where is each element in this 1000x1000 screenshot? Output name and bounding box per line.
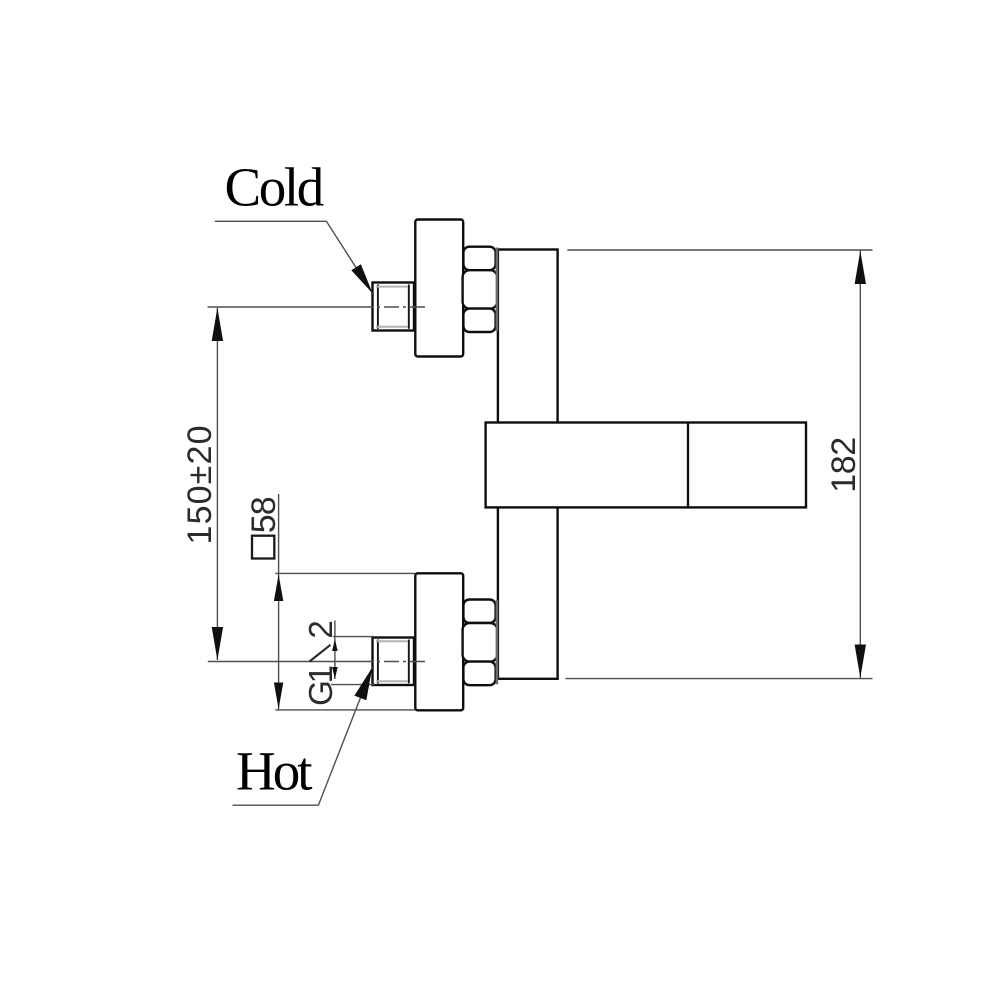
svg-text:182: 182 xyxy=(825,437,863,493)
svg-text:1: 1 xyxy=(302,665,339,683)
svg-text:58: 58 xyxy=(245,496,283,533)
svg-text:Hot: Hot xyxy=(236,741,312,802)
svg-text:Cold: Cold xyxy=(225,157,324,218)
svg-text:2: 2 xyxy=(302,620,339,638)
svg-text:150±20: 150±20 xyxy=(181,426,219,545)
